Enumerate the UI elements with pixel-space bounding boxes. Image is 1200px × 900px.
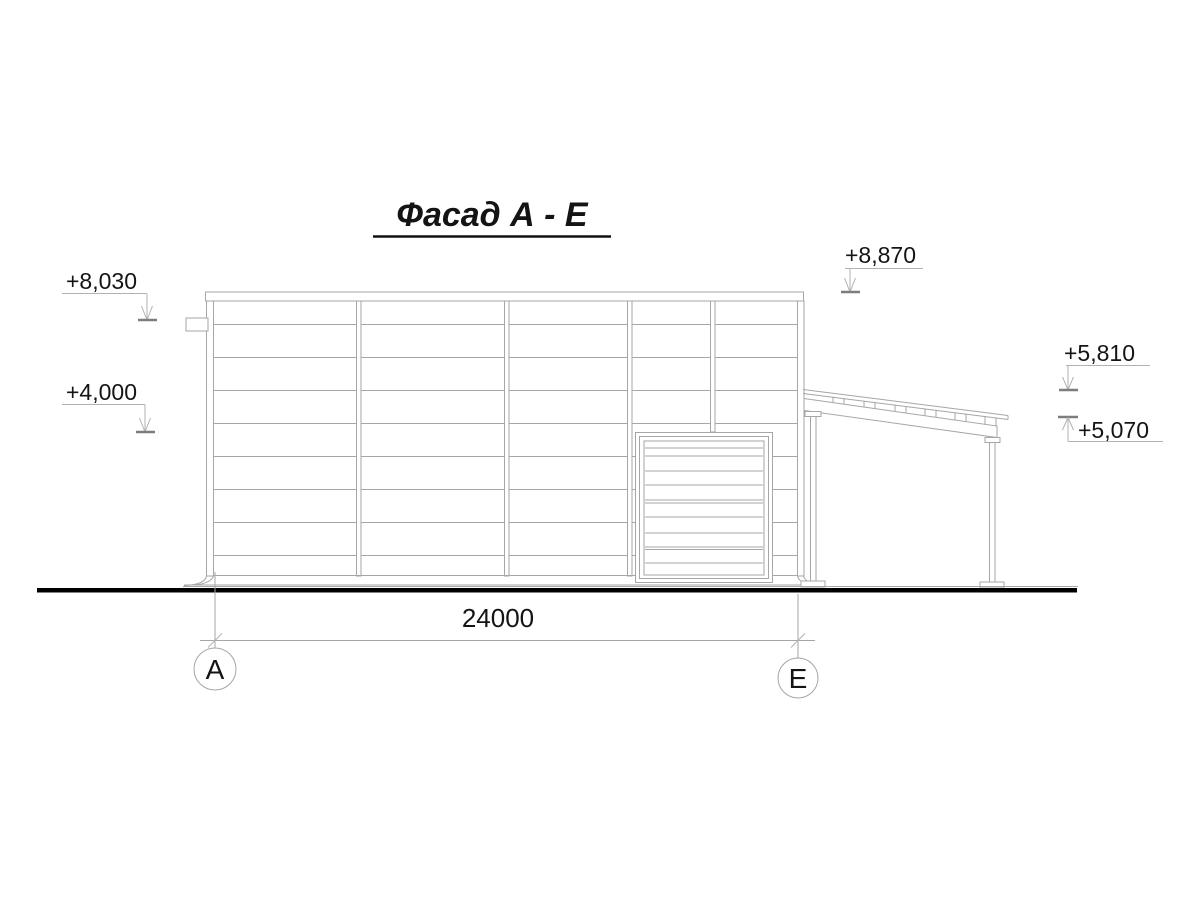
parapet-cap — [206, 292, 804, 301]
elevation-mark-5070: +5,070 — [1058, 417, 1163, 443]
mullion — [505, 301, 510, 576]
drawing-title-block: Фасад А - Е — [373, 196, 611, 237]
elevation-label: +8,870 — [845, 242, 916, 268]
drawing-title: Фасад А - Е — [396, 196, 589, 234]
elevation-label: +8,030 — [66, 268, 137, 294]
sectional-door — [636, 433, 773, 583]
door-leaf — [644, 441, 764, 575]
elevation-mark-8870: +8,870 — [841, 242, 923, 292]
wall-left-edge — [207, 301, 214, 576]
wall-right-edge — [798, 301, 805, 576]
ground — [37, 587, 1078, 593]
canopy-beam — [804, 399, 997, 438]
axis-marker-e: Е — [778, 658, 818, 698]
elevation-label: +4,000 — [66, 379, 137, 405]
mullion — [628, 301, 633, 576]
axis-marker-a: А — [194, 648, 236, 690]
elevation-mark-4000: +4,000 — [62, 379, 155, 432]
canopy — [801, 390, 1008, 589]
elevation-mark-5810: +5,810 — [1059, 340, 1150, 390]
mullion — [357, 301, 362, 576]
axis-label-a: А — [206, 654, 225, 685]
facade-elevation-canvas: Фасад А - Е — [0, 0, 1200, 900]
dimension-label: 24000 — [462, 603, 534, 633]
canopy-post-left — [801, 412, 825, 588]
elevation-label: +5,810 — [1064, 340, 1135, 366]
canopy-post-right — [980, 438, 1004, 589]
mullion — [711, 301, 716, 432]
ground-line — [37, 588, 1077, 593]
elevation-mark-8030: +8,030 — [62, 268, 157, 320]
drawing-sheet: Фасад А - Е — [0, 0, 1200, 900]
elevation-label: +5,070 — [1078, 417, 1149, 443]
axis-label-e: Е — [789, 663, 808, 694]
wall-projection — [186, 318, 208, 331]
